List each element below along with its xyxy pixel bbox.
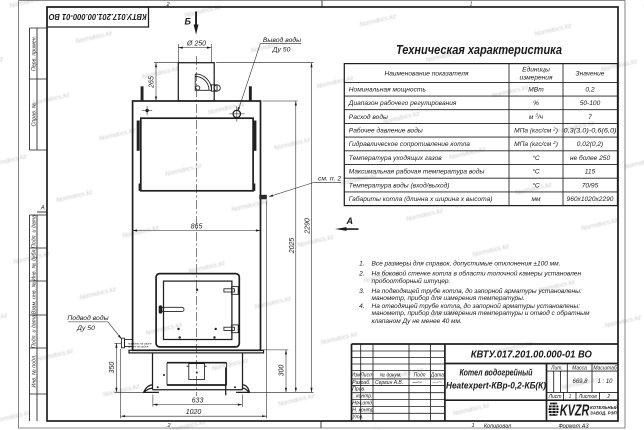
svg-text:2290: 2290: [305, 218, 312, 235]
svg-text:Подп. и дата: Подп. и дата: [32, 215, 38, 248]
svg-text:Подп: Подп: [414, 373, 426, 379]
svg-text:На отводящей трубе котла, до з: На отводящей трубе котла, до запорной ар…: [372, 302, 581, 310]
svg-text:Лист: Лист: [359, 373, 373, 379]
svg-text:KVZR: KVZR: [560, 402, 590, 419]
svg-text:Сервин А.В.: Сервин А.В.: [375, 380, 403, 386]
svg-text:пробоотборный штуцер.: пробоотборный штуцер.: [372, 277, 451, 285]
svg-text:Ду 50: Ду 50: [272, 47, 291, 54]
svg-text:1: 1: [471, 423, 474, 429]
svg-text:Normdocs.kz: Normdocs.kz: [491, 84, 530, 100]
svg-text:Normdocs.kz: Normdocs.kz: [273, 136, 312, 152]
svg-text:Normdocs.kz: Normdocs.kz: [452, 402, 491, 418]
svg-text:Normdocs.kz: Normdocs.kz: [0, 153, 28, 169]
svg-text:50-100: 50-100: [580, 100, 601, 107]
svg-text:Гидравлическое сопротивление к: Гидравлическое сопротивление котла: [349, 140, 470, 148]
svg-text:Наименование показателя: Наименование показателя: [384, 71, 469, 78]
svg-text:265: 265: [148, 76, 155, 89]
svg-text:0,2: 0,2: [585, 87, 594, 94]
svg-text:Normdocs.kz: Normdocs.kz: [624, 155, 644, 171]
svg-text:1.: 1.: [359, 261, 365, 268]
svg-text:КВТУ.017.201.00.000-01 ВО: КВТУ.017.201.00.000-01 ВО: [48, 12, 147, 21]
svg-text:Вывод воды: Вывод воды: [263, 36, 301, 44]
svg-text:Normdocs.kz: Normdocs.kz: [604, 314, 643, 330]
svg-text:1: 1: [569, 394, 572, 400]
svg-text:Диапазон рабочего регулировани: Диапазон рабочего регулирования: [348, 99, 457, 107]
svg-text:Габариты котла (длинна х ширин: Габариты котла (длинна х ширина х высота…: [349, 195, 493, 203]
svg-text:КОТЕЛЬНЫЙ: КОТЕЛЬНЫЙ: [590, 405, 619, 410]
svg-text:Normdocs.kz: Normdocs.kz: [98, 127, 137, 143]
svg-text:°С: °С: [532, 168, 540, 176]
svg-text:Котел водогрейный: Котел водогрейный: [460, 368, 533, 379]
svg-text:960х1020х2290: 960х1020х2290: [567, 196, 614, 203]
svg-text:манометр, прибор для измерения: манометр, прибор для измерения температу…: [372, 294, 525, 302]
svg-text:Normdocs.kz: Normdocs.kz: [56, 189, 95, 205]
svg-text:Инв. № дубл.: Инв. № дубл.: [32, 248, 38, 281]
svg-text:Техническая характеристика: Техническая характеристика: [396, 43, 562, 57]
svg-text:Normdocs.kz: Normdocs.kz: [0, 312, 9, 328]
svg-text:Копировал: Копировал: [484, 424, 511, 430]
svg-text:2: 2: [165, 2, 169, 8]
svg-text:Листов: Листов: [578, 394, 598, 400]
svg-text:Normdocs.kz: Normdocs.kz: [79, 286, 118, 302]
svg-text:Масштаб: Масштаб: [593, 365, 617, 371]
svg-text:300: 300: [279, 365, 286, 377]
svg-text:не более 250: не более 250: [570, 154, 611, 162]
svg-text:Номинальная мощность: Номинальная мощность: [349, 87, 427, 94]
svg-text:1020: 1020: [186, 409, 202, 416]
svg-text:Normdocs.kz: Normdocs.kz: [211, 357, 250, 373]
svg-text:Normdocs.kz: Normdocs.kz: [359, 13, 398, 29]
svg-text:115: 115: [585, 169, 596, 176]
svg-text:Максимальная рабочая температу: Максимальная рабочая температура воды: [349, 168, 485, 176]
svg-text:°С: °С: [532, 181, 540, 189]
svg-text:Подвод воды: Подвод воды: [67, 314, 108, 322]
svg-text:На боковой стенке котла в обла: На боковой стенке котла в области топочн…: [372, 269, 582, 277]
svg-text:%: %: [533, 100, 539, 107]
svg-text:мм: мм: [531, 196, 541, 203]
svg-text:0,02(0,2): 0,02(0,2): [577, 141, 603, 148]
svg-text:Normdocs.kz: Normdocs.kz: [122, 224, 161, 240]
svg-text:1: 1: [470, 2, 473, 8]
svg-text:м 3/ч: м 3/ч: [529, 113, 544, 121]
svg-text:Normdocs.kz: Normdocs.kz: [165, 162, 204, 178]
svg-text:Лист: Лист: [548, 394, 562, 400]
svg-text:Normdocs.kz: Normdocs.kz: [472, 243, 511, 259]
svg-text:Normdocs.kz: Normdocs.kz: [297, 234, 336, 250]
svg-text:Пров.: Пров.: [352, 387, 365, 393]
svg-text:Дата: Дата: [430, 373, 444, 379]
svg-text:измерения: измерения: [520, 75, 553, 82]
svg-text:Normdocs.kz: Normdocs.kz: [534, 22, 573, 38]
svg-text:ЗАВОД. РЭП: ЗАВОД. РЭП: [590, 411, 618, 416]
svg-text:Перв. примен.: Перв. примен.: [32, 36, 38, 71]
svg-text:2.: 2.: [358, 270, 365, 277]
svg-text:3.: 3.: [359, 288, 365, 295]
svg-text:МПа (кгс/см 2): МПа (кгс/см 2): [514, 140, 558, 148]
svg-text:4.: 4.: [359, 303, 365, 310]
svg-text:куплен на сайте: куплен на сайте: [128, 345, 149, 349]
svg-text:Normdocs.kz: Normdocs.kz: [75, 30, 114, 46]
svg-text:Normdocs.kz: Normdocs.kz: [32, 91, 71, 107]
svg-text:Единицы: Единицы: [522, 66, 550, 74]
svg-text:Температура уходящих газов: Температура уходящих газов: [349, 154, 442, 162]
svg-text:Normdocs.kz: Normdocs.kz: [600, 58, 639, 74]
svg-text:Normdocs.kz: Normdocs.kz: [581, 217, 620, 233]
svg-text:Normdocs.kz: Normdocs.kz: [9, 0, 48, 10]
svg-text:Б: Б: [185, 16, 192, 26]
svg-text:манометр, прибор для измерения: манометр, прибор для измерения температу…: [372, 309, 590, 317]
svg-text:Все размеры для справок, допус: Все размеры для справок, допустимые откл…: [372, 260, 561, 268]
svg-text:°С: °С: [532, 154, 540, 162]
svg-text:КВТУ.017.201.00.000-01 ВО: КВТУ.017.201.00.000-01 ВО: [471, 349, 592, 361]
svg-text:2025: 2025: [289, 238, 296, 255]
svg-text:Расход воды: Расход воды: [349, 113, 388, 121]
svg-text:А: А: [40, 206, 45, 212]
svg-text:Справ. №: Справ. №: [32, 102, 38, 126]
svg-text:Взам. инв. №: Взам. инв. №: [32, 281, 38, 314]
svg-text:Н. контр.: Н. контр.: [352, 407, 375, 413]
svg-text:Масса: Масса: [572, 365, 587, 371]
svg-text:633: 633: [192, 397, 204, 404]
svg-text:Разраб.: Разраб.: [352, 380, 370, 386]
svg-text:клапаном Ду не менее 40 мм.: клапаном Ду не менее 40 мм.: [372, 318, 462, 325]
svg-text:Normdocs.kz: Normdocs.kz: [36, 348, 75, 364]
svg-text:Лит.: Лит.: [550, 365, 563, 371]
svg-text:Normdocs.kz: Normdocs.kz: [231, 198, 270, 214]
svg-text:Подп. и дата: Подп. и дата: [32, 315, 38, 348]
svg-text:2: 2: [606, 394, 610, 400]
svg-text:Ø 250: Ø 250: [186, 40, 206, 47]
svg-text:Normdocs.kz: Normdocs.kz: [141, 65, 180, 81]
svg-text:МВт: МВт: [528, 87, 544, 94]
svg-text:№ докум.: № докум.: [380, 373, 402, 379]
svg-text:На подводящей трубе котла, до: На подводящей трубе котла, до запорной а…: [372, 287, 582, 295]
svg-text:. контр.: . контр.: [354, 394, 373, 400]
svg-text:Значение: Значение: [576, 71, 605, 78]
svg-text:Рабочее давление воды: Рабочее давление воды: [349, 127, 423, 135]
svg-text:Normdocs.kz: Normdocs.kz: [406, 207, 445, 223]
svg-text:350: 350: [109, 362, 116, 374]
svg-text:1 : 10: 1 : 10: [597, 379, 613, 385]
svg-text:865: 865: [191, 223, 203, 230]
svg-text:Формат А3: Формат А3: [558, 424, 589, 430]
svg-text:Инв. № подл.: Инв. № подл.: [32, 355, 38, 388]
svg-text:0,3(3,0)-0,6(6,0): 0,3(3,0)-0,6(6,0): [564, 128, 617, 135]
svg-text:Утв.: Утв.: [352, 414, 363, 420]
svg-text:669,8: 669,8: [572, 379, 588, 385]
svg-text:Normdocs.kz: Normdocs.kz: [277, 392, 316, 408]
svg-text:Ду 50: Ду 50: [76, 325, 95, 332]
svg-text:А: А: [346, 216, 354, 226]
svg-text:Normdocs.kz: Normdocs.kz: [102, 383, 141, 399]
svg-text:2: 2: [166, 423, 170, 429]
svg-text:Normdocs.kz: Normdocs.kz: [0, 56, 5, 72]
svg-text:Normdocs.kz: Normdocs.kz: [0, 409, 32, 425]
svg-text:Heatexpert-КВр-0,2-КБ(К): Heatexpert-КВр-0,2-КБ(К): [446, 381, 546, 392]
svg-text:7: 7: [588, 114, 592, 121]
svg-text:70/95: 70/95: [582, 182, 599, 189]
svg-text:МПа (кгс/см 2): МПа (кгс/см 2): [514, 126, 558, 134]
svg-text:см. п. 2: см. п. 2: [318, 175, 341, 182]
svg-text:Нач.отд.: Нач.отд.: [352, 401, 373, 407]
svg-text:Температура воды (вход/выход): Температура воды (вход/выход): [349, 181, 450, 189]
